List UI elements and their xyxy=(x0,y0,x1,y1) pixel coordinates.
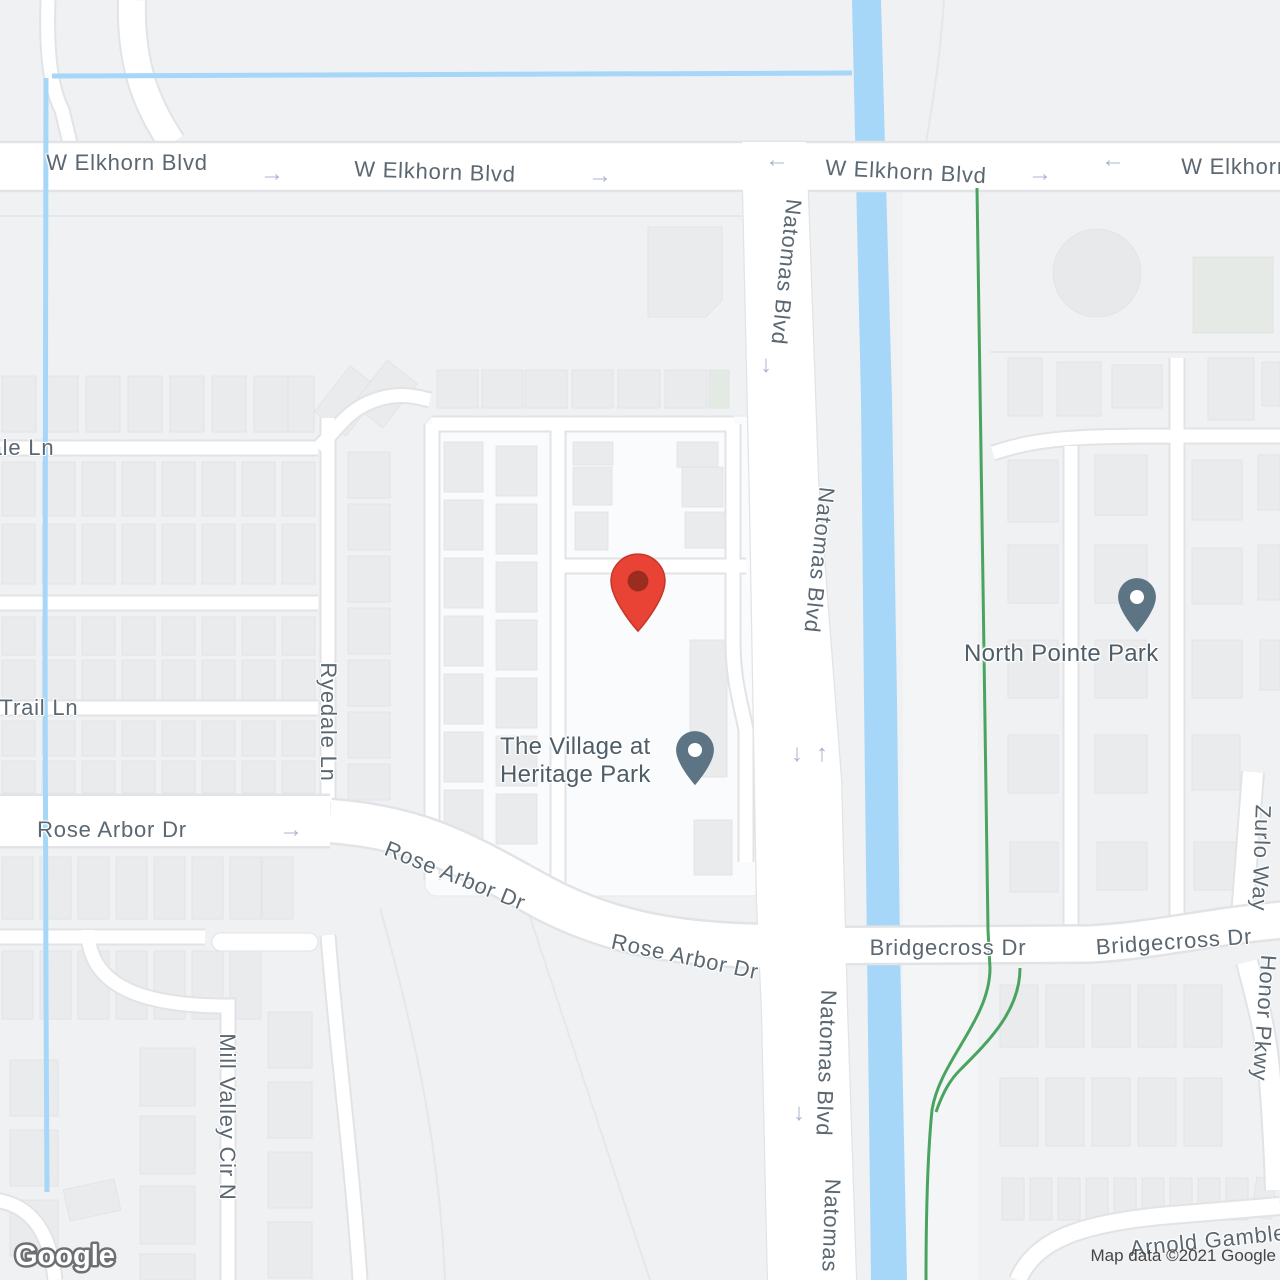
place-label-village[interactable]: The Village at Heritage Park xyxy=(500,733,651,789)
culdesac-stub xyxy=(212,933,318,951)
google-logo-text: Google xyxy=(15,1240,115,1272)
place-label-north-pointe-park[interactable]: North Pointe Park xyxy=(964,640,1159,668)
place-label-village-line1: The Village at xyxy=(500,733,651,761)
canal-corridor xyxy=(903,143,978,1280)
map-canvas[interactable]: W Elkhorn Blvd W Elkhorn Blvd W Elkhorn … xyxy=(0,0,1280,1280)
map-attribution: Map data ©2021 Google xyxy=(1091,1246,1277,1266)
place-label-village-line2: Heritage Park xyxy=(500,761,651,789)
google-logo[interactable]: Google xyxy=(12,1236,142,1280)
